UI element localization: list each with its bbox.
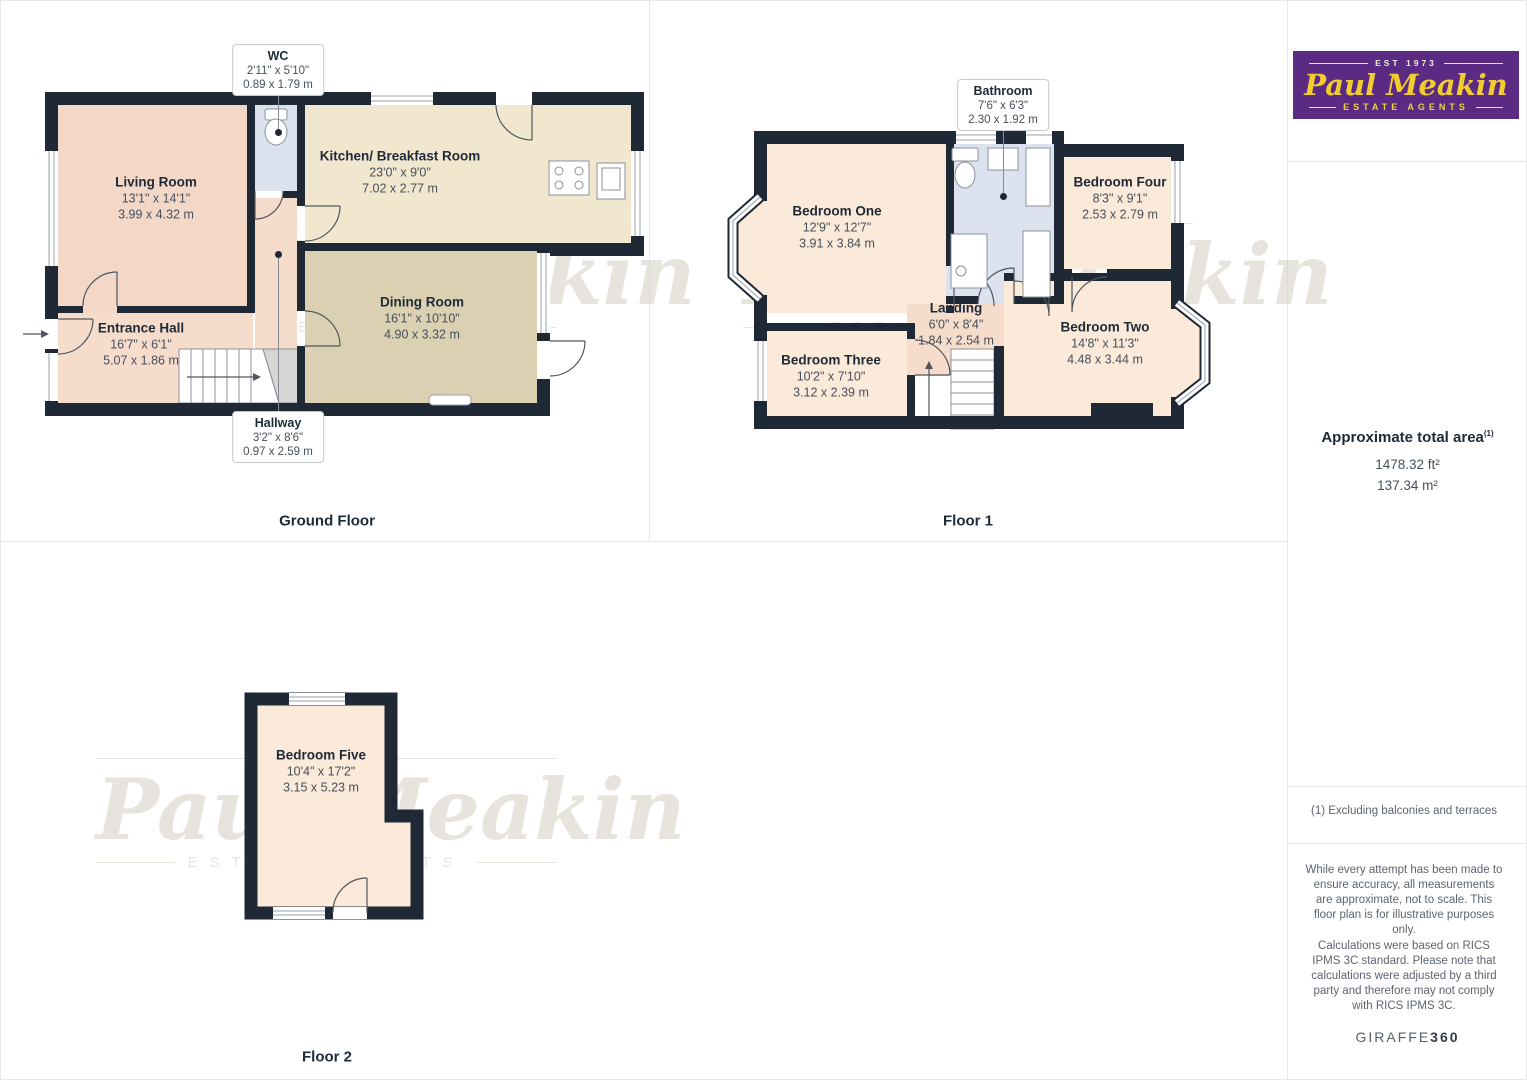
disclaimer-rics: Calculations were based on RICS IPMS 3C … — [1304, 939, 1504, 1014]
sidebar-divider — [1287, 1, 1288, 1080]
callout-wc: WC 2'11" x 5'10" 0.89 x 1.79 m — [232, 44, 324, 96]
leader-dot-bathroom — [1000, 193, 1007, 200]
callout-bathroom: Bathroom 7'6" x 6'3" 2.30 x 1.92 m — [957, 79, 1049, 131]
leader-wc — [278, 94, 279, 131]
label-landing: Landing 6'0" x 8'4" 1.84 x 2.54 m — [918, 300, 994, 349]
callout-hallway: Hallway 3'2" x 8'6" 0.97 x 2.59 m — [232, 411, 324, 463]
disclaimer-accuracy: While every attempt has been made to ens… — [1304, 863, 1504, 938]
total-area-title: Approximate total area(1) — [1287, 429, 1527, 446]
floor-title-ground: Ground Floor — [279, 513, 375, 530]
logo-name-text: Paul Meakin — [1293, 70, 1519, 100]
floor-title-floor1: Floor 1 — [943, 513, 993, 530]
leader-dot-wc — [275, 129, 282, 136]
label-living-room: Living Room 13'1" x 14'1" 3.99 x 4.32 m — [115, 174, 197, 223]
sidebar-section-divider-3 — [1287, 843, 1527, 844]
total-area-ft: 1478.32 ft² — [1287, 457, 1527, 472]
label-dining-room: Dining Room 16'1" x 10'10" 4.90 x 3.32 m — [380, 294, 464, 343]
leader-hallway — [278, 258, 279, 415]
label-kitchen: Kitchen/ Breakfast Room 23'0" x 9'0" 7.0… — [320, 148, 481, 197]
label-bedroom-five: Bedroom Five 10'4" x 17'2" 3.15 x 5.23 m — [276, 747, 366, 796]
sidebar-section-divider-1 — [1287, 161, 1527, 162]
leader-dot-hallway — [275, 251, 282, 258]
stairs-ground — [179, 349, 303, 403]
label-bedroom-two: Bedroom Two 14'8" x 11'3" 4.48 x 3.44 m — [1061, 319, 1150, 368]
agency-logo: EST 1973 Paul Meakin ESTATE AGENTS — [1293, 51, 1519, 119]
sidebar-section-divider-2 — [1287, 786, 1527, 787]
label-bedroom-three: Bedroom Three 10'2" x 7'10" 3.12 x 2.39 … — [781, 352, 881, 401]
floor2-plan — [1, 541, 649, 1076]
floorplan-page: EST 1973 Paul Meakin ESTATE AGENTS EST 1… — [0, 0, 1527, 1080]
leader-bathroom — [1003, 129, 1004, 195]
total-area-m: 137.34 m² — [1287, 478, 1527, 493]
giraffe360-brand: GIRAFFE360 — [1287, 1029, 1527, 1045]
room-bedroom-five — [251, 699, 417, 913]
ground-floor-plan — [1, 1, 649, 541]
area-footnote: (1) Excluding balconies and terraces — [1304, 804, 1504, 819]
label-bedroom-one: Bedroom One 12'9" x 12'7" 3.91 x 3.84 m — [792, 203, 881, 252]
footnote-mark: (1) — [1484, 429, 1494, 438]
label-bedroom-four: Bedroom Four 8'3" x 9'1" 2.53 x 2.79 m — [1074, 174, 1167, 223]
logo-est-text: EST 1973 — [1309, 58, 1503, 68]
logo-tagline-text: ESTATE AGENTS — [1309, 102, 1503, 112]
floor-title-floor2: Floor 2 — [302, 1049, 352, 1066]
label-entrance-hall: Entrance Hall 16'7" x 6'1" 5.07 x 1.86 m — [98, 320, 184, 369]
